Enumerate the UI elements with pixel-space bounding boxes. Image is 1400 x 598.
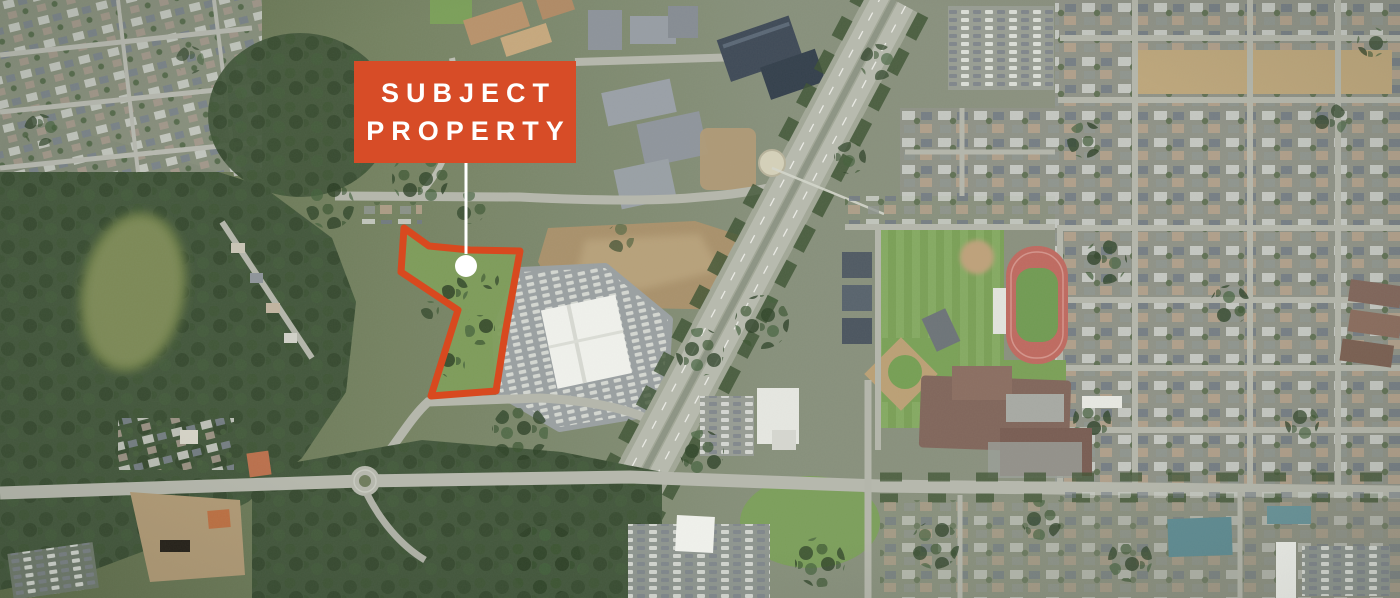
- map-canvas: SUBJECT PROPERTY: [0, 0, 1400, 598]
- subject-property-label: SUBJECT PROPERTY: [354, 61, 576, 163]
- label-line-2: PROPERTY: [359, 112, 571, 150]
- annotation-layer: [0, 0, 1400, 598]
- label-line-1: SUBJECT: [374, 74, 556, 112]
- callout-dot: [455, 255, 477, 277]
- property-outline: [401, 228, 520, 396]
